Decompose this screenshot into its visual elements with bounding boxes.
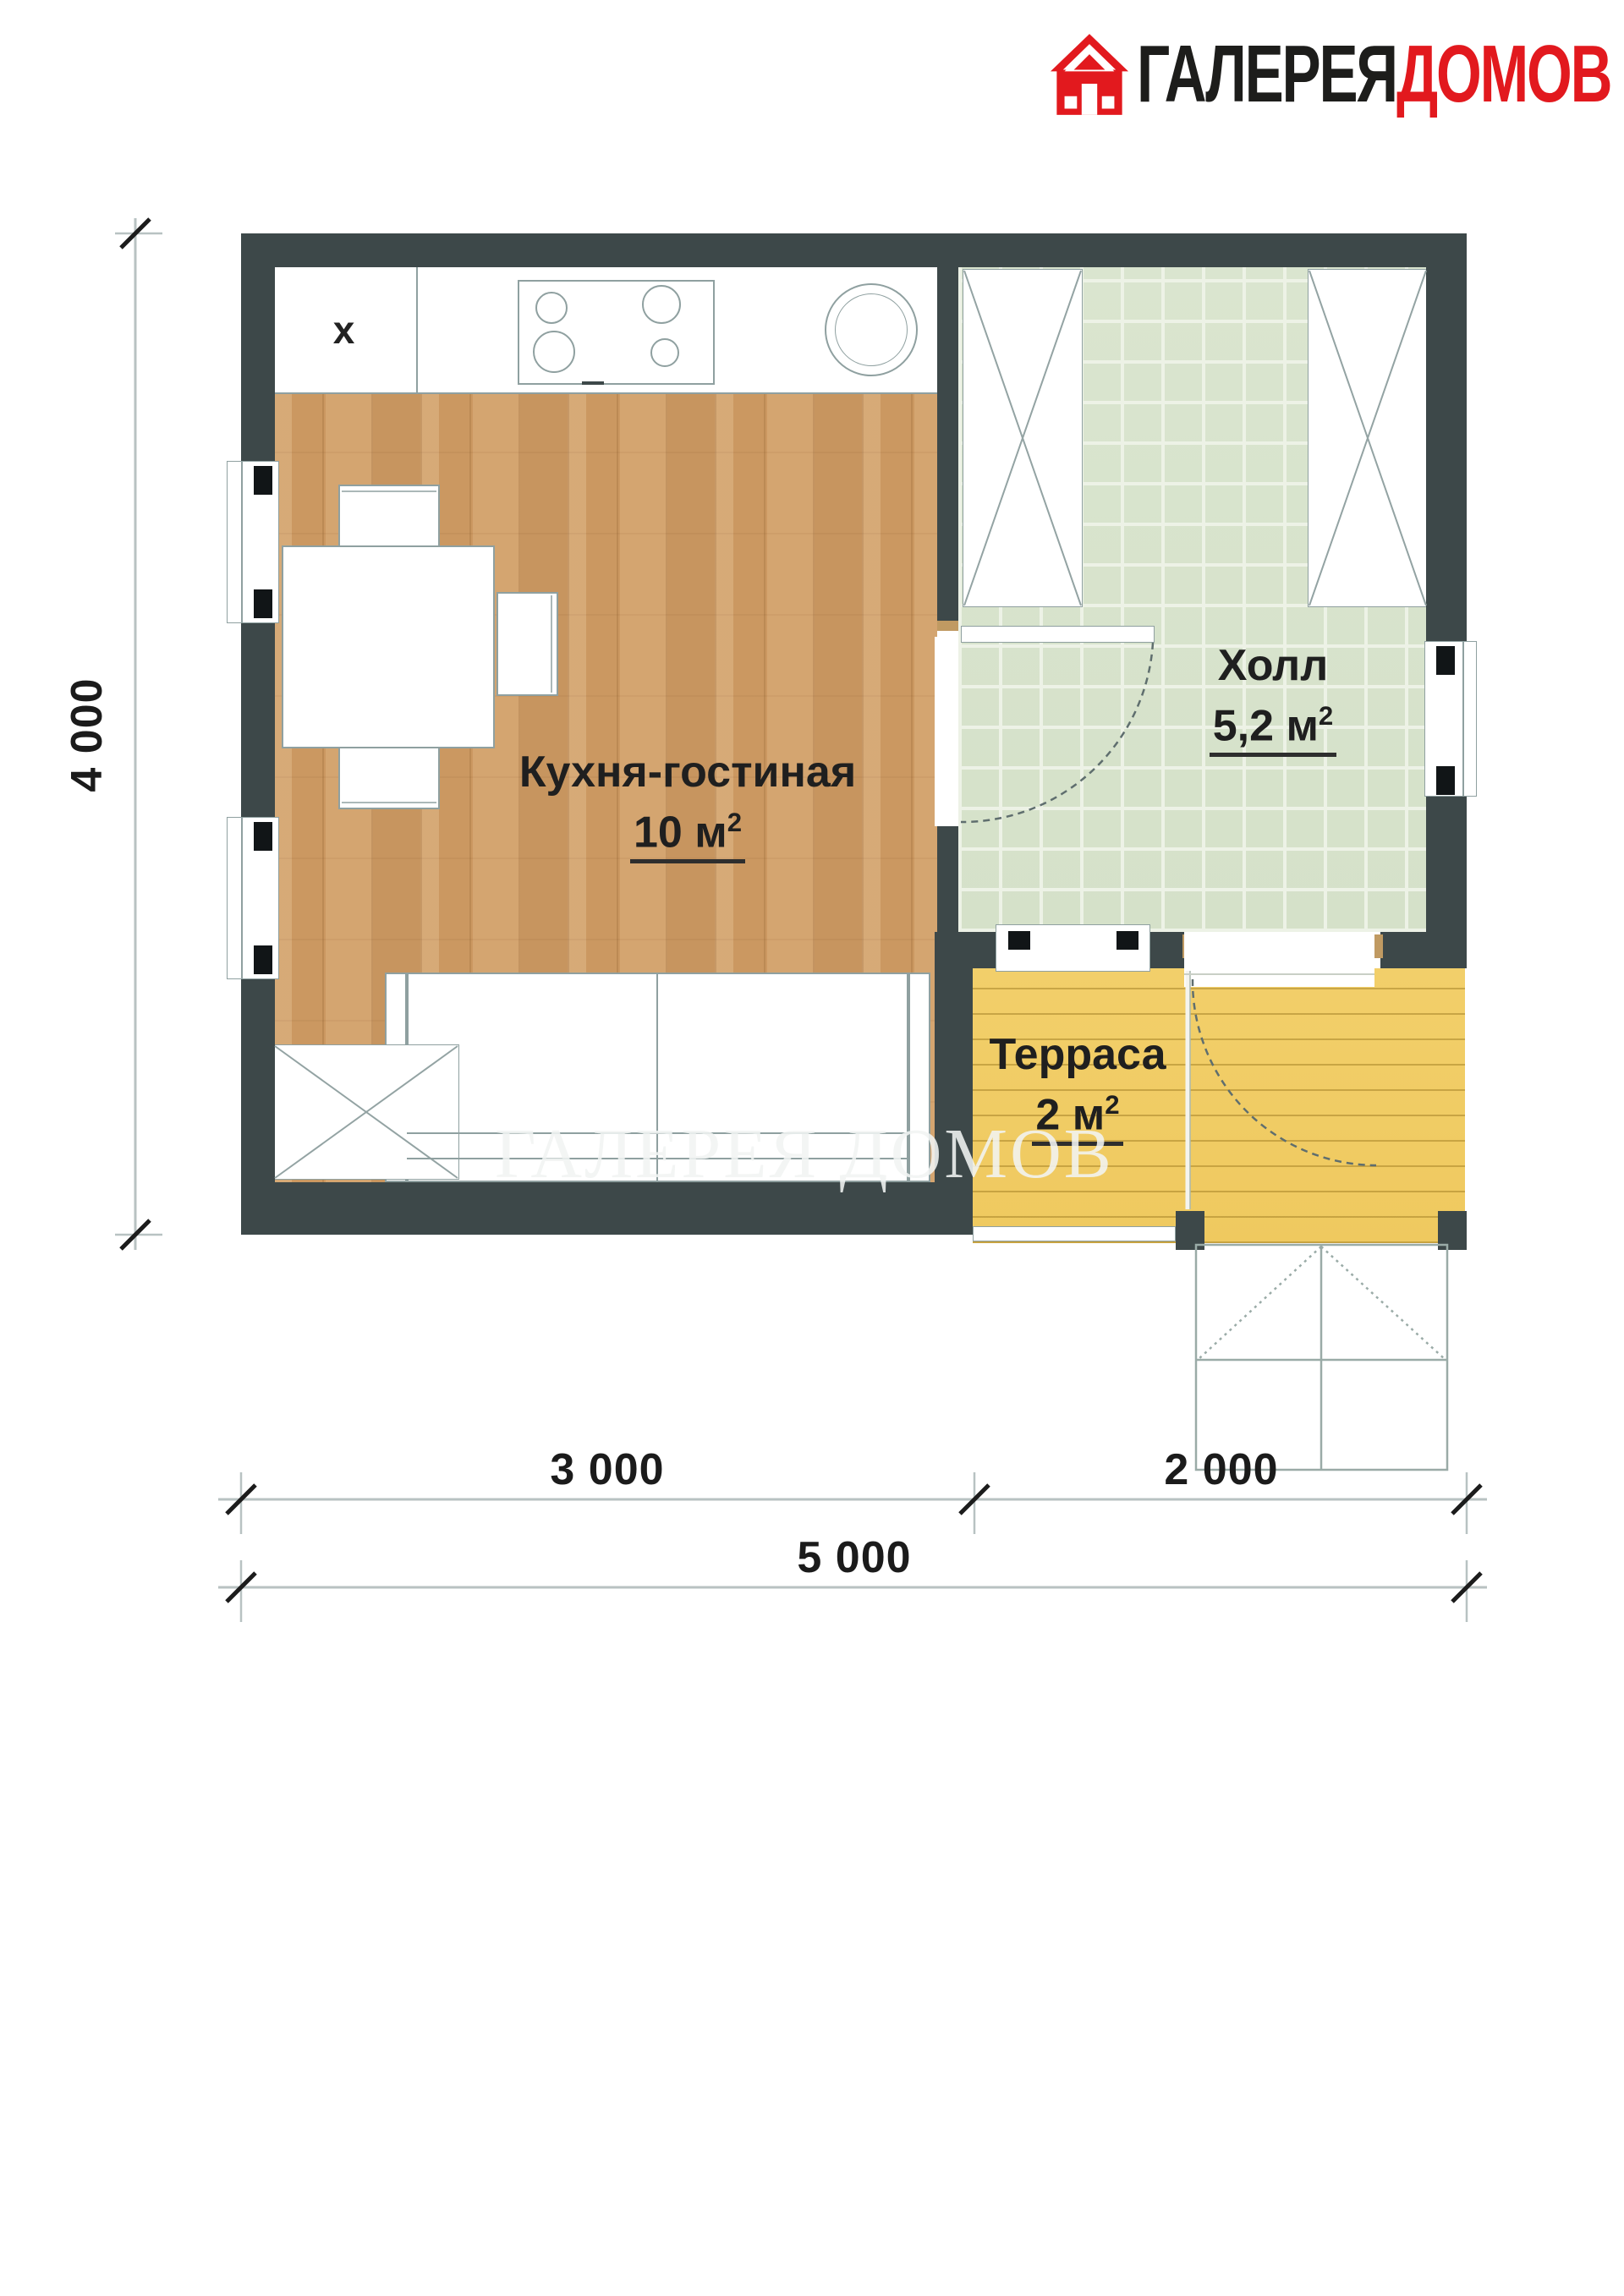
dimension-tick-marks — [121, 219, 1481, 1602]
hall-area: 5,2 м2 — [1210, 692, 1337, 757]
floor-plan-page: x — [0, 0, 1624, 2296]
dimension-extension-stubs — [115, 233, 1467, 1622]
hall-label: Холл 5,2 м2 — [1104, 641, 1442, 757]
brand-name-red: ДОМОВ — [1396, 29, 1610, 119]
hall-name: Холл — [1104, 641, 1442, 690]
house-icon — [1051, 34, 1128, 115]
watermark-text: ГАЛЕРЕЯ ДОМОВ — [495, 1113, 1114, 1195]
kitchen-label: Кухня-гостиная 10 м2 — [434, 748, 941, 863]
brand-logo: ГАЛЕРЕЯДОМОВ — [1051, 34, 1624, 115]
kitchen-name: Кухня-гостиная — [434, 748, 941, 797]
entrance-steps — [1196, 1245, 1447, 1470]
brand-logo-text: ГАЛЕРЕЯДОМОВ — [1137, 28, 1610, 121]
brand-name-black: ГАЛЕРЕЯ — [1137, 29, 1396, 119]
kitchen-area: 10 м2 — [630, 798, 745, 863]
dim-width-5000: 5 000 — [770, 1536, 939, 1580]
dim-width-3000: 3 000 — [523, 1448, 692, 1492]
dim-width-2000: 2 000 — [1137, 1448, 1306, 1492]
terrace-name: Терраса — [908, 1030, 1247, 1079]
dim-height-4000: 4 000 — [65, 667, 109, 803]
dimension-lines — [135, 218, 1487, 1587]
